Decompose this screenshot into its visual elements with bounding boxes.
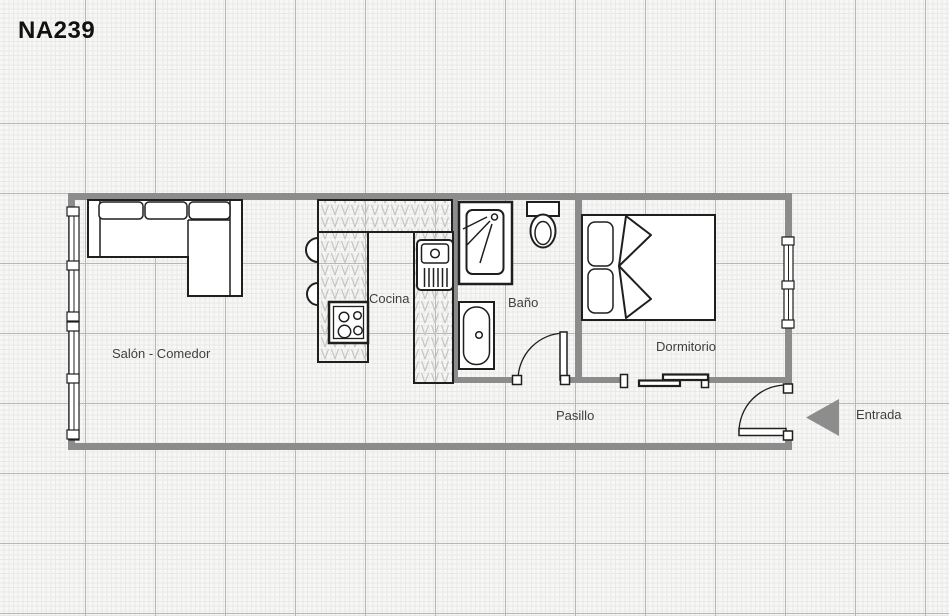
- wall-right-upper: [785, 193, 792, 237]
- window-bedroom: [782, 237, 794, 328]
- bathroom: [459, 202, 570, 385]
- room-label-cocina: Cocina: [369, 291, 409, 306]
- toilet-icon: [527, 202, 559, 248]
- wall-corridor-1: [452, 377, 515, 383]
- room-label-salon: Salón - Comedor: [112, 346, 210, 361]
- floor-plan-drawing: [0, 0, 949, 616]
- window-left: [67, 207, 79, 440]
- entrance-label: Entrada: [856, 407, 902, 422]
- page-title: NA239: [18, 17, 95, 45]
- entrance-arrow-icon: [806, 399, 839, 436]
- room-label-bano: Baño: [508, 295, 538, 310]
- stool-icon: [306, 238, 318, 262]
- stool-icon: [307, 283, 318, 305]
- room-label-pasillo: Pasillo: [556, 408, 594, 423]
- bathroom-door: [513, 332, 570, 385]
- shower-icon: [459, 202, 512, 284]
- bedroom: [582, 215, 715, 388]
- sofa: [88, 200, 242, 296]
- stove-icon: [329, 302, 368, 343]
- bathtub-icon: [459, 302, 494, 369]
- room-label-dormitorio: Dormitorio: [656, 339, 716, 354]
- wall-corridor-3: [709, 377, 792, 383]
- sliding-door: [621, 375, 709, 388]
- sink-icon: [417, 240, 453, 290]
- entrance-door: [739, 384, 793, 440]
- wall-bottom: [68, 443, 792, 450]
- bed-icon: [582, 215, 715, 320]
- wall-bath-bedroom: [575, 198, 582, 383]
- floor-plan-page: NA239 Salón - Comedor Cocina Baño Dormit…: [0, 0, 949, 616]
- wall-top: [68, 193, 792, 200]
- wall-corridor-2: [567, 377, 622, 383]
- kitchen-counter-top: [318, 200, 452, 232]
